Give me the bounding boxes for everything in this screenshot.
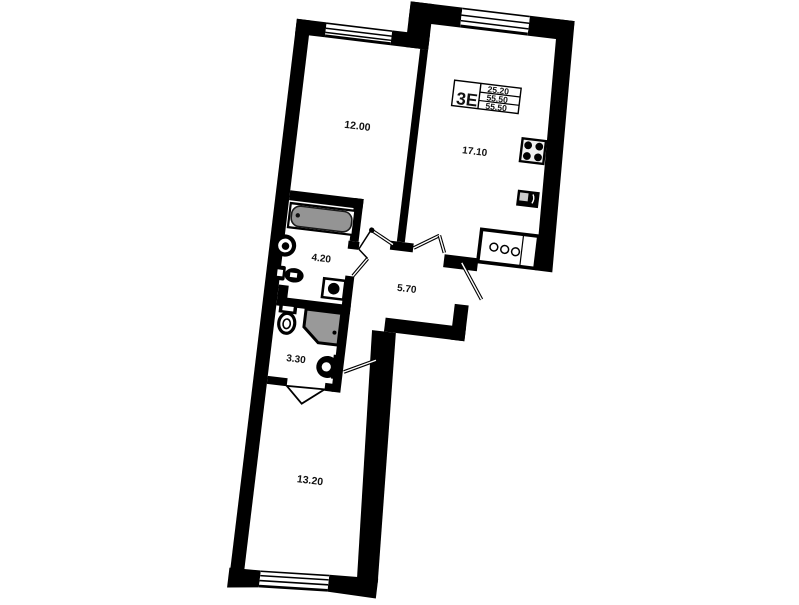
- svg-text:3Е: 3Е: [455, 88, 479, 110]
